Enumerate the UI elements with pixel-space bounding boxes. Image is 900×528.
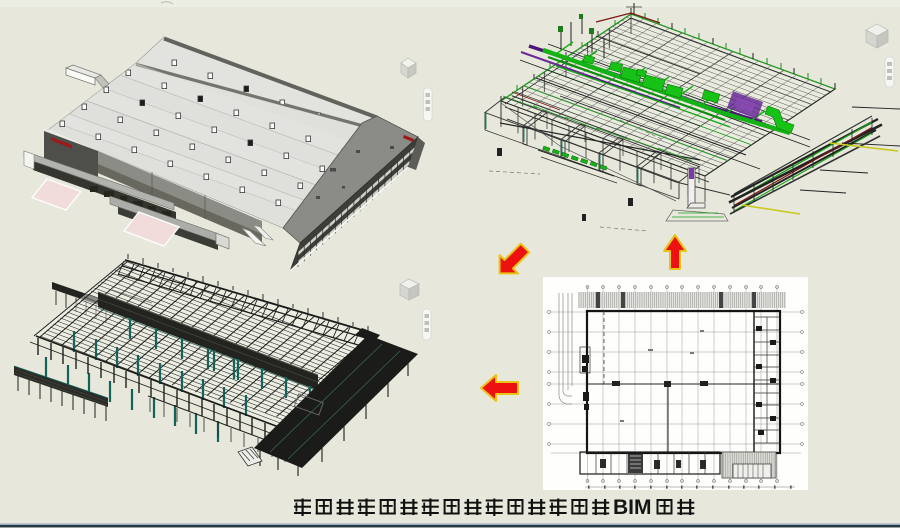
svg-text:BIM: BIM bbox=[613, 496, 652, 519]
